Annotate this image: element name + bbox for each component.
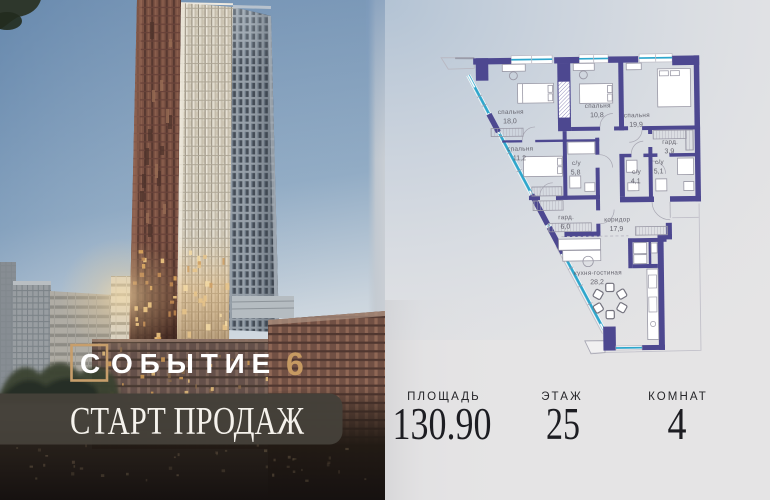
svg-text:гард.: гард.: [662, 139, 678, 146]
svg-text:С: С: [80, 348, 107, 379]
svg-text:25: 25: [546, 399, 580, 449]
svg-text:5,1: 5,1: [654, 168, 664, 175]
svg-text:3,9: 3,9: [664, 148, 674, 155]
svg-text:10,8: 10,8: [590, 112, 604, 119]
svg-text:гард.: гард.: [558, 214, 574, 221]
svg-text:11,2: 11,2: [513, 155, 526, 162]
svg-text:ОБЫТИЕ: ОБЫТИЕ: [111, 348, 277, 379]
svg-text:18,0: 18,0: [503, 118, 517, 125]
svg-text:кухня-гостиная: кухня-гостиная: [574, 269, 622, 277]
svg-text:4: 4: [668, 399, 687, 449]
svg-text:спальня: спальня: [498, 109, 524, 116]
svg-text:6: 6: [286, 346, 304, 382]
svg-text:19,9: 19,9: [629, 122, 643, 129]
svg-text:спальня: спальня: [507, 146, 533, 153]
svg-text:СТАРТ ПРОДАЖ: СТАРТ ПРОДАЖ: [70, 400, 304, 443]
svg-text:с/у: с/у: [572, 160, 582, 167]
svg-text:5,8: 5,8: [571, 169, 581, 176]
svg-text:спальня: спальня: [585, 103, 611, 110]
svg-text:с/у: с/у: [655, 159, 665, 166]
svg-text:130.90: 130.90: [393, 399, 492, 449]
svg-text:28,2: 28,2: [590, 279, 604, 286]
svg-text:коридор: коридор: [604, 216, 630, 223]
svg-text:с/у: с/у: [632, 169, 642, 176]
svg-text:17,9: 17,9: [610, 226, 624, 233]
svg-text:6,0: 6,0: [560, 224, 570, 231]
svg-text:спальня: спальня: [624, 112, 650, 119]
svg-text:4,1: 4,1: [631, 178, 641, 185]
